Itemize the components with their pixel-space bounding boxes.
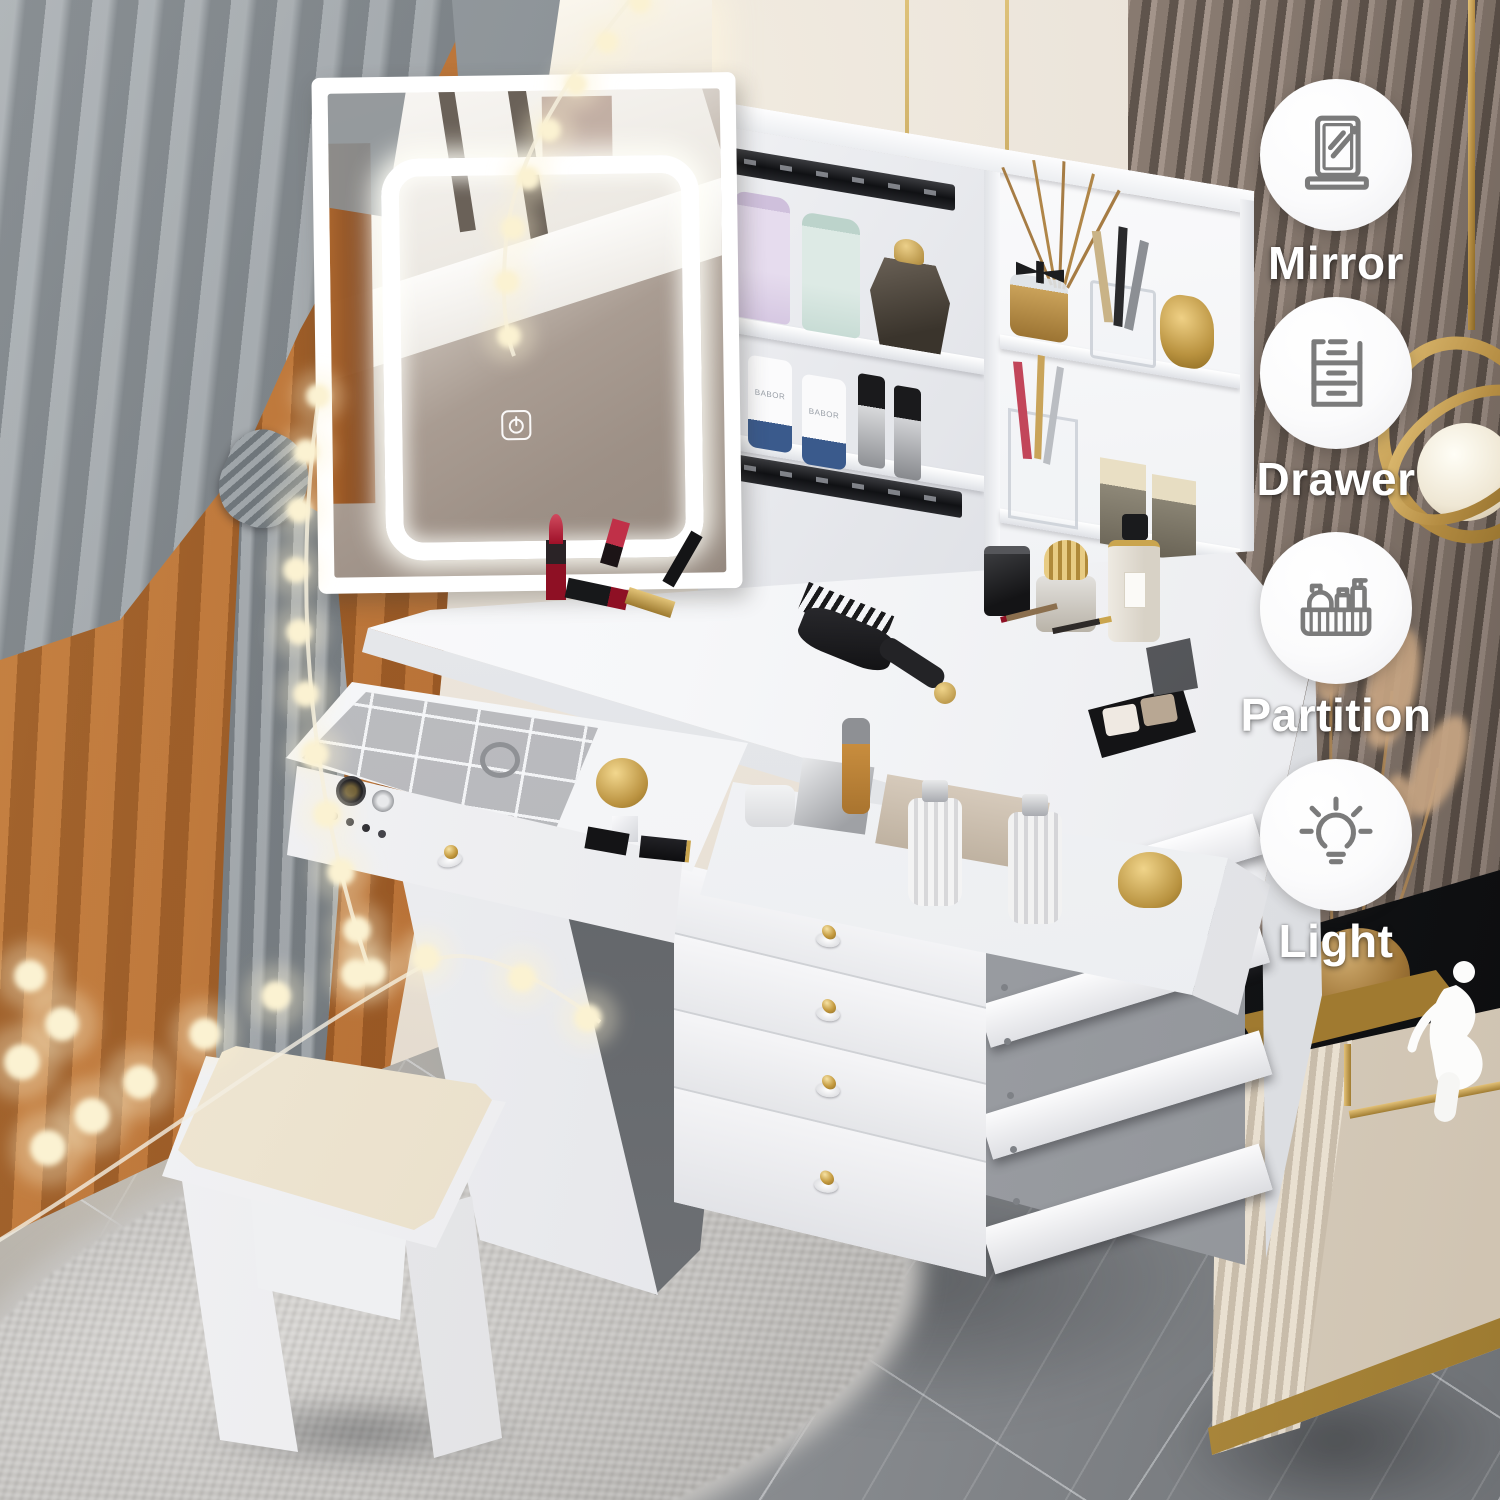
light-bulb-icon (1290, 789, 1382, 881)
vanity-mirror-icon (1290, 109, 1382, 201)
badge-label-drawer: Drawer (1186, 452, 1486, 506)
drawer-chest-icon (1290, 327, 1382, 419)
feature-badge-mirror (1260, 79, 1412, 231)
cosmetics-partition-icon (1290, 562, 1382, 654)
badge-label-light: Light (1186, 914, 1486, 968)
fairy-bulb-halos (0, 0, 664, 1186)
feature-badge-light (1260, 759, 1412, 911)
fairy-lights (0, 0, 1500, 1500)
badge-label-partition: Partition (1186, 688, 1486, 742)
badge-label-mirror: Mirror (1186, 236, 1486, 290)
vanity-product-photo: BABOR BABOR (0, 0, 1500, 1500)
feature-badge-partition (1260, 532, 1412, 684)
feature-badge-drawer (1260, 297, 1412, 449)
